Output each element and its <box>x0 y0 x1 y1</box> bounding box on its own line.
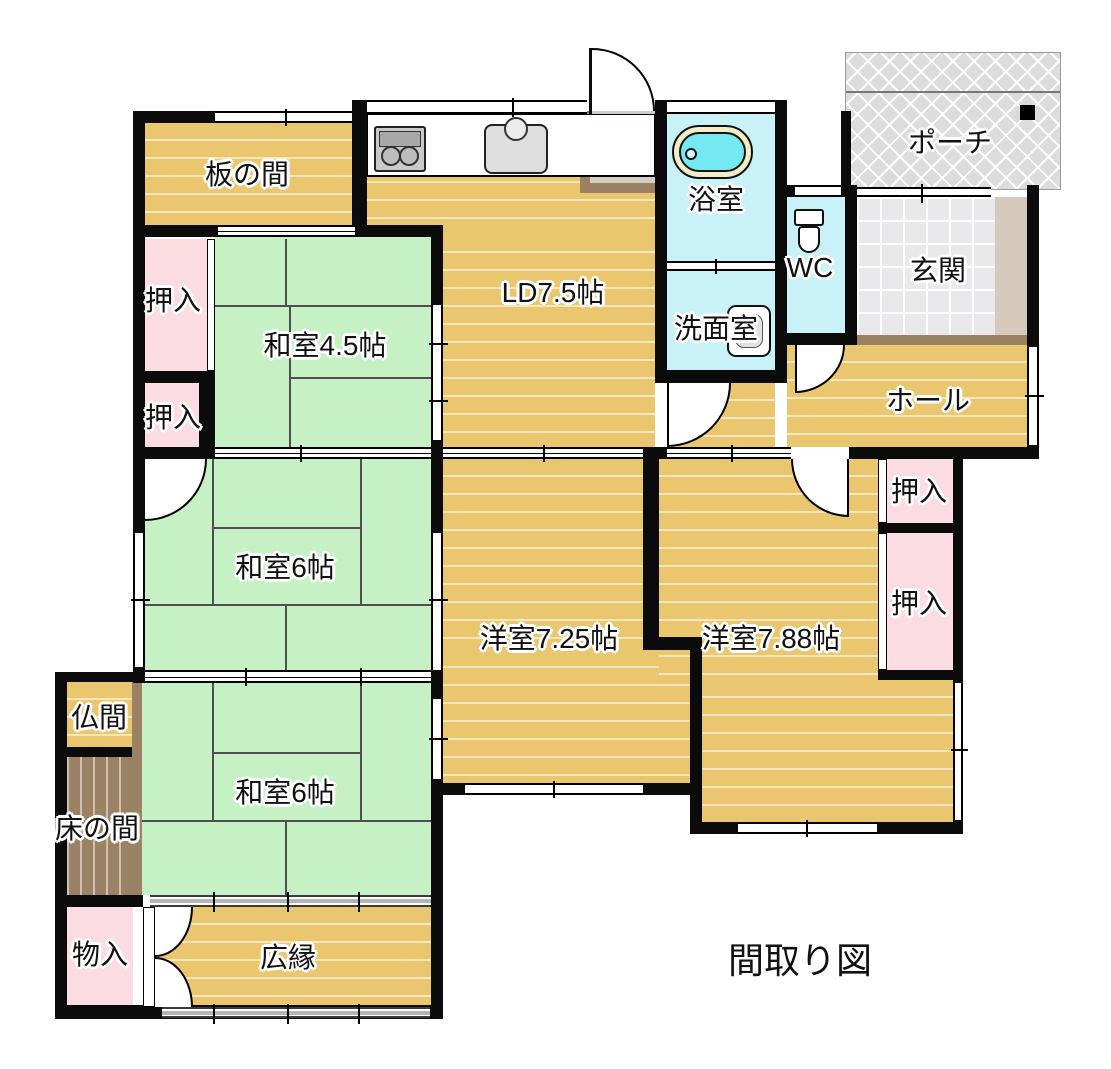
window-tick <box>358 892 360 912</box>
wall <box>953 447 963 680</box>
window-tick <box>1025 395 1044 397</box>
wall <box>133 111 145 533</box>
toilet-icon <box>794 209 824 226</box>
window <box>215 111 352 123</box>
sliding-window <box>150 895 431 907</box>
tatami-line <box>285 604 287 670</box>
genkan-step-edge <box>857 335 1027 345</box>
wall <box>133 447 215 459</box>
tatami-line <box>285 820 287 895</box>
wall <box>690 650 702 834</box>
window <box>431 699 443 779</box>
window-tick <box>285 109 287 126</box>
door-panel <box>589 48 592 114</box>
wall <box>199 383 215 447</box>
window-tick <box>429 599 448 601</box>
tatami-line <box>285 239 287 305</box>
window-tick <box>429 400 448 402</box>
wall <box>643 447 667 459</box>
sliding-door <box>443 447 643 459</box>
back-door-arc <box>592 48 655 111</box>
wall <box>133 371 215 383</box>
wall <box>655 100 667 383</box>
window-tick <box>715 259 717 274</box>
sliding-door <box>215 447 431 459</box>
window-tick <box>731 445 733 462</box>
label-tokonoma: 床の間 <box>55 807 139 847</box>
wall <box>55 895 143 907</box>
window <box>738 822 877 834</box>
label-yoshitsu725: 洋室7.25帖 <box>480 617 619 657</box>
tatami-line <box>212 752 360 754</box>
window-tick <box>287 892 289 912</box>
window <box>465 783 643 795</box>
tatami-line <box>212 527 360 529</box>
room-yoshitsu788 <box>702 680 953 822</box>
label-mononyu: 物入 <box>72 933 128 973</box>
wall <box>841 111 851 190</box>
floor-plan: 板の間 LD7.5帖 和室4.5帖 押入 押入 浴室 洗面室 WC 玄関 ポーチ… <box>0 0 1111 1069</box>
shoe-cabinet <box>995 197 1027 335</box>
door-panel <box>143 907 155 1007</box>
wall <box>775 333 845 345</box>
label-yoshitsu788: 洋室7.88帖 <box>702 617 841 657</box>
window-tick <box>553 781 555 798</box>
pillar-icon <box>1020 105 1035 120</box>
wall <box>55 672 142 682</box>
wall <box>845 185 857 345</box>
tatami-line <box>289 377 431 379</box>
label-senmenshitsu: 洗面室 <box>674 307 758 347</box>
window <box>431 533 443 670</box>
window <box>133 533 145 667</box>
label-itanoma: 板の間 <box>205 153 289 193</box>
toilet-icon <box>798 226 820 253</box>
sliding-door <box>431 305 443 440</box>
sliding-door <box>145 670 431 683</box>
label-washitsu45: 和室4.5帖 <box>264 324 387 364</box>
wall <box>133 225 218 237</box>
closet-door <box>878 459 887 523</box>
label-oshiire-nw-upper: 押入 <box>145 279 201 319</box>
window <box>795 185 841 197</box>
window-tick <box>245 668 247 686</box>
kitchen-step-edge <box>580 183 665 193</box>
window <box>367 100 587 114</box>
sink-icon <box>484 124 548 174</box>
window-tick <box>287 1004 289 1024</box>
wall <box>55 1005 145 1019</box>
wall <box>133 111 215 123</box>
window-tick <box>213 892 215 912</box>
wall <box>655 370 787 383</box>
label-washitsu6-upper: 和室6帖 <box>235 546 335 586</box>
label-oshiire-e-upper: 押入 <box>891 470 947 510</box>
window-tick <box>213 1004 215 1024</box>
sliding-door <box>218 225 355 237</box>
wall <box>355 225 443 237</box>
label-oshiire-e-lower: 押入 <box>891 582 947 622</box>
label-washitsu6-lower: 和室6帖 <box>235 771 335 811</box>
window-tick <box>360 668 362 686</box>
tokonoma-frame <box>132 672 142 897</box>
window-tick <box>543 445 545 462</box>
wall <box>431 440 443 459</box>
label-hiroen: 広縁 <box>260 936 316 976</box>
window-tick <box>512 98 514 117</box>
wall <box>849 447 1039 459</box>
label-wc: WC <box>787 252 834 284</box>
tatami-line <box>145 604 431 606</box>
bathtub-icon <box>672 125 753 179</box>
wall <box>643 637 702 650</box>
label-ld: LD7.5帖 <box>502 271 605 311</box>
window-tick <box>300 445 302 462</box>
label-porch: ポーチ <box>908 121 992 161</box>
closet-door <box>878 533 887 670</box>
page-title: 間取り図 <box>728 932 872 984</box>
wall <box>878 523 963 533</box>
tatami-line <box>360 459 362 604</box>
window-tick <box>429 343 448 345</box>
tatami-line <box>212 459 214 604</box>
label-genkan: 玄関 <box>910 249 966 289</box>
window-tick <box>429 738 448 740</box>
porch-step-line <box>846 91 1060 93</box>
tatami-line <box>360 683 362 822</box>
room-ld <box>443 235 655 447</box>
wall <box>643 459 659 650</box>
wall <box>55 747 132 757</box>
wall <box>878 670 963 680</box>
wall <box>431 235 443 305</box>
entrance-door <box>857 187 991 197</box>
room-yoshitsu725 <box>443 650 690 783</box>
window-tick <box>358 1004 360 1024</box>
sliding-window <box>162 1007 430 1018</box>
window-tick <box>806 820 808 837</box>
window-tick <box>921 184 923 203</box>
window <box>1027 347 1039 445</box>
closet-door <box>207 239 215 371</box>
label-hall: ホール <box>886 379 970 419</box>
sliding-door <box>667 447 791 459</box>
label-yokushitsu: 浴室 <box>688 178 744 218</box>
tatami-line <box>215 305 431 307</box>
stove-icon <box>374 126 426 172</box>
label-oshiire-nw-lower: 押入 <box>145 396 201 436</box>
window-tick <box>951 749 968 751</box>
window <box>953 683 963 820</box>
wall <box>352 100 367 235</box>
window <box>667 100 775 114</box>
sliding-door <box>667 261 775 271</box>
label-butsuma: 仏間 <box>71 696 127 736</box>
window-tick <box>131 599 150 601</box>
